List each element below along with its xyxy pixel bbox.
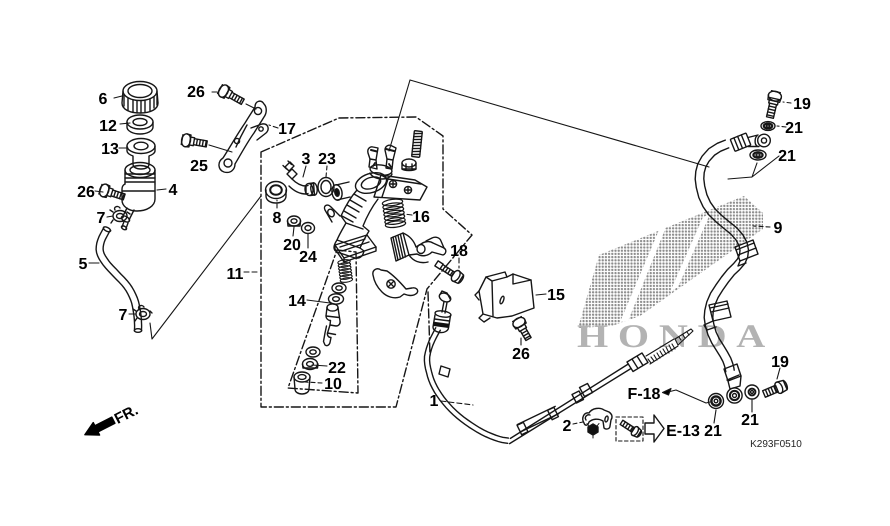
svg-text:1: 1 (430, 393, 439, 410)
svg-text:16: 16 (412, 209, 430, 226)
svg-text:17: 17 (278, 121, 296, 138)
svg-text:24: 24 (299, 249, 317, 266)
svg-text:23: 23 (318, 151, 336, 168)
svg-text:22: 22 (328, 360, 346, 377)
svg-text:18: 18 (450, 243, 468, 260)
svg-text:FR.: FR. (112, 402, 141, 428)
svg-text:F-18: F-18 (628, 386, 661, 403)
svg-text:9: 9 (774, 220, 783, 237)
svg-text:7: 7 (119, 307, 128, 324)
svg-text:21: 21 (785, 120, 803, 137)
svg-text:12: 12 (99, 118, 117, 135)
svg-text:19: 19 (771, 354, 789, 371)
svg-text:21: 21 (741, 412, 759, 429)
svg-text:7: 7 (97, 210, 106, 227)
svg-text:13: 13 (101, 141, 119, 158)
svg-text:21: 21 (778, 148, 796, 165)
svg-text:26: 26 (187, 84, 205, 101)
svg-text:4: 4 (169, 182, 178, 199)
svg-text:25: 25 (190, 158, 208, 175)
svg-text:5: 5 (79, 256, 88, 273)
svg-text:K293F0510: K293F0510 (750, 439, 802, 450)
svg-text:HONDA: HONDA (577, 319, 775, 355)
svg-text:26: 26 (77, 184, 95, 201)
svg-text:21: 21 (704, 423, 722, 440)
svg-text:E-13: E-13 (666, 423, 700, 440)
svg-text:15: 15 (547, 287, 565, 304)
svg-text:14: 14 (288, 293, 306, 310)
svg-text:3: 3 (302, 151, 311, 168)
svg-text:11: 11 (227, 266, 244, 283)
svg-text:10: 10 (324, 376, 342, 393)
svg-text:19: 19 (793, 96, 811, 113)
svg-text:26: 26 (512, 346, 530, 363)
svg-text:2: 2 (563, 418, 572, 435)
svg-text:6: 6 (99, 91, 108, 108)
svg-text:8: 8 (273, 210, 282, 227)
